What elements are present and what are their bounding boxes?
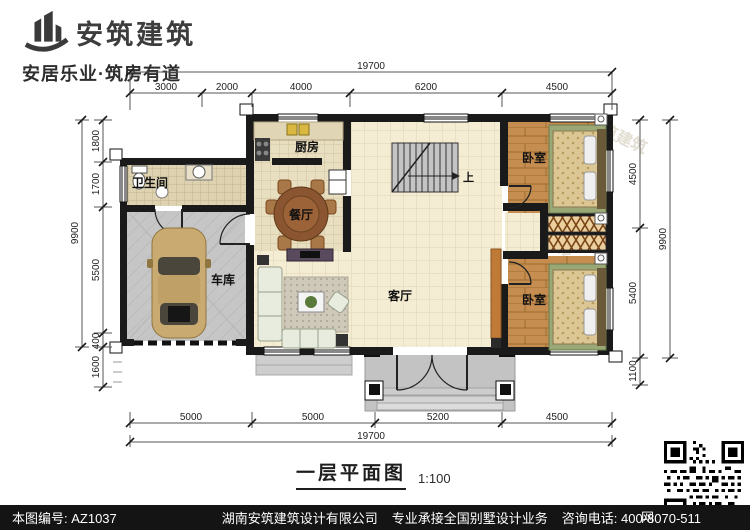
drawing-title: 一层平面图 [296,458,406,490]
sofa [282,329,336,348]
dim-label: 5000 [302,412,325,423]
dim-label: 5500 [91,258,102,281]
floor-plan-drawing: 安筑建筑 hnazjz.com hnazjz.com 安筑建筑 [0,55,750,505]
side-table [336,334,348,346]
company-logo-icon [22,8,70,56]
front-apron [256,355,352,375]
dim-label: 4000 [290,82,313,93]
dim-label: 4500 [546,82,569,93]
dim-bottom-total: 19700 [357,431,385,442]
porch-column [365,381,383,400]
stairs-up-label: 上 [463,170,474,184]
stove [255,138,270,161]
garage-label: 车库 [211,272,235,287]
footer-bar: 本图编号: AZ1037 湖南安筑建筑设计有限公司 专业承接全国别墅设计业务 咨… [0,505,750,530]
dim-right-total: 9900 [658,227,669,250]
dim-label: 3000 [155,82,178,93]
drawing-scale: 1:100 [418,471,451,490]
sink [193,166,205,178]
sofa [258,267,282,341]
entry-wood-screen [491,249,501,348]
living-label: 客厅 [387,288,412,303]
dining-label: 餐厅 [289,207,313,222]
stairhall-window [424,114,468,122]
dim-left-total: 9900 [70,221,81,244]
kitchen-label: 厨房 [295,139,319,154]
dim-label: 4500 [546,412,569,423]
dim-label: 1600 [91,355,102,378]
kitchen-window [278,114,318,122]
sheet-number: 本图编号: AZ1037 [12,508,117,527]
company-full-name: 湖南安筑建筑设计有限公司 [222,508,378,527]
dim-label: 5400 [628,281,639,304]
dim-label: 5000 [180,412,203,423]
car [147,228,211,338]
bed-bottom [549,253,607,350]
dim-label: 6200 [415,82,438,93]
bedroom-top-window [550,114,596,122]
dim-label: 400 [91,332,102,349]
dim-label: 1800 [91,129,102,152]
web-label: 网 [641,507,654,526]
bed-top [549,114,607,224]
driveway-marks [113,352,122,382]
plant [305,296,317,308]
dim-top-total: 19700 [357,61,385,72]
dim-label: 4500 [628,162,639,185]
fridge [329,170,346,194]
dim-label: 1100 [628,360,639,382]
dim-label: 1700 [91,172,102,195]
company-slogan: 专业承接全国别墅设计业务 [392,508,548,527]
drawing-sheet: 安筑建筑 安居乐业·筑房有道 [0,0,750,530]
bedroom-bottom-label: 卧室 [522,292,546,307]
entry-porch [364,347,515,411]
drawing-title-block: 一层平面图 1:100 [296,458,451,490]
bathroom-label: 卫生间 [132,175,168,190]
bedroom-top-label: 卧室 [522,150,546,165]
wardrobe-closet [548,235,606,250]
contact-phone: 咨询电话: 400-8070-511 [562,508,701,527]
side-table [257,255,269,265]
bathroom-window [120,166,127,202]
dim-label: 2000 [216,82,239,93]
dim-label: 5200 [427,412,450,423]
company-name: 安筑建筑 [76,13,196,52]
porch-column [496,381,514,400]
